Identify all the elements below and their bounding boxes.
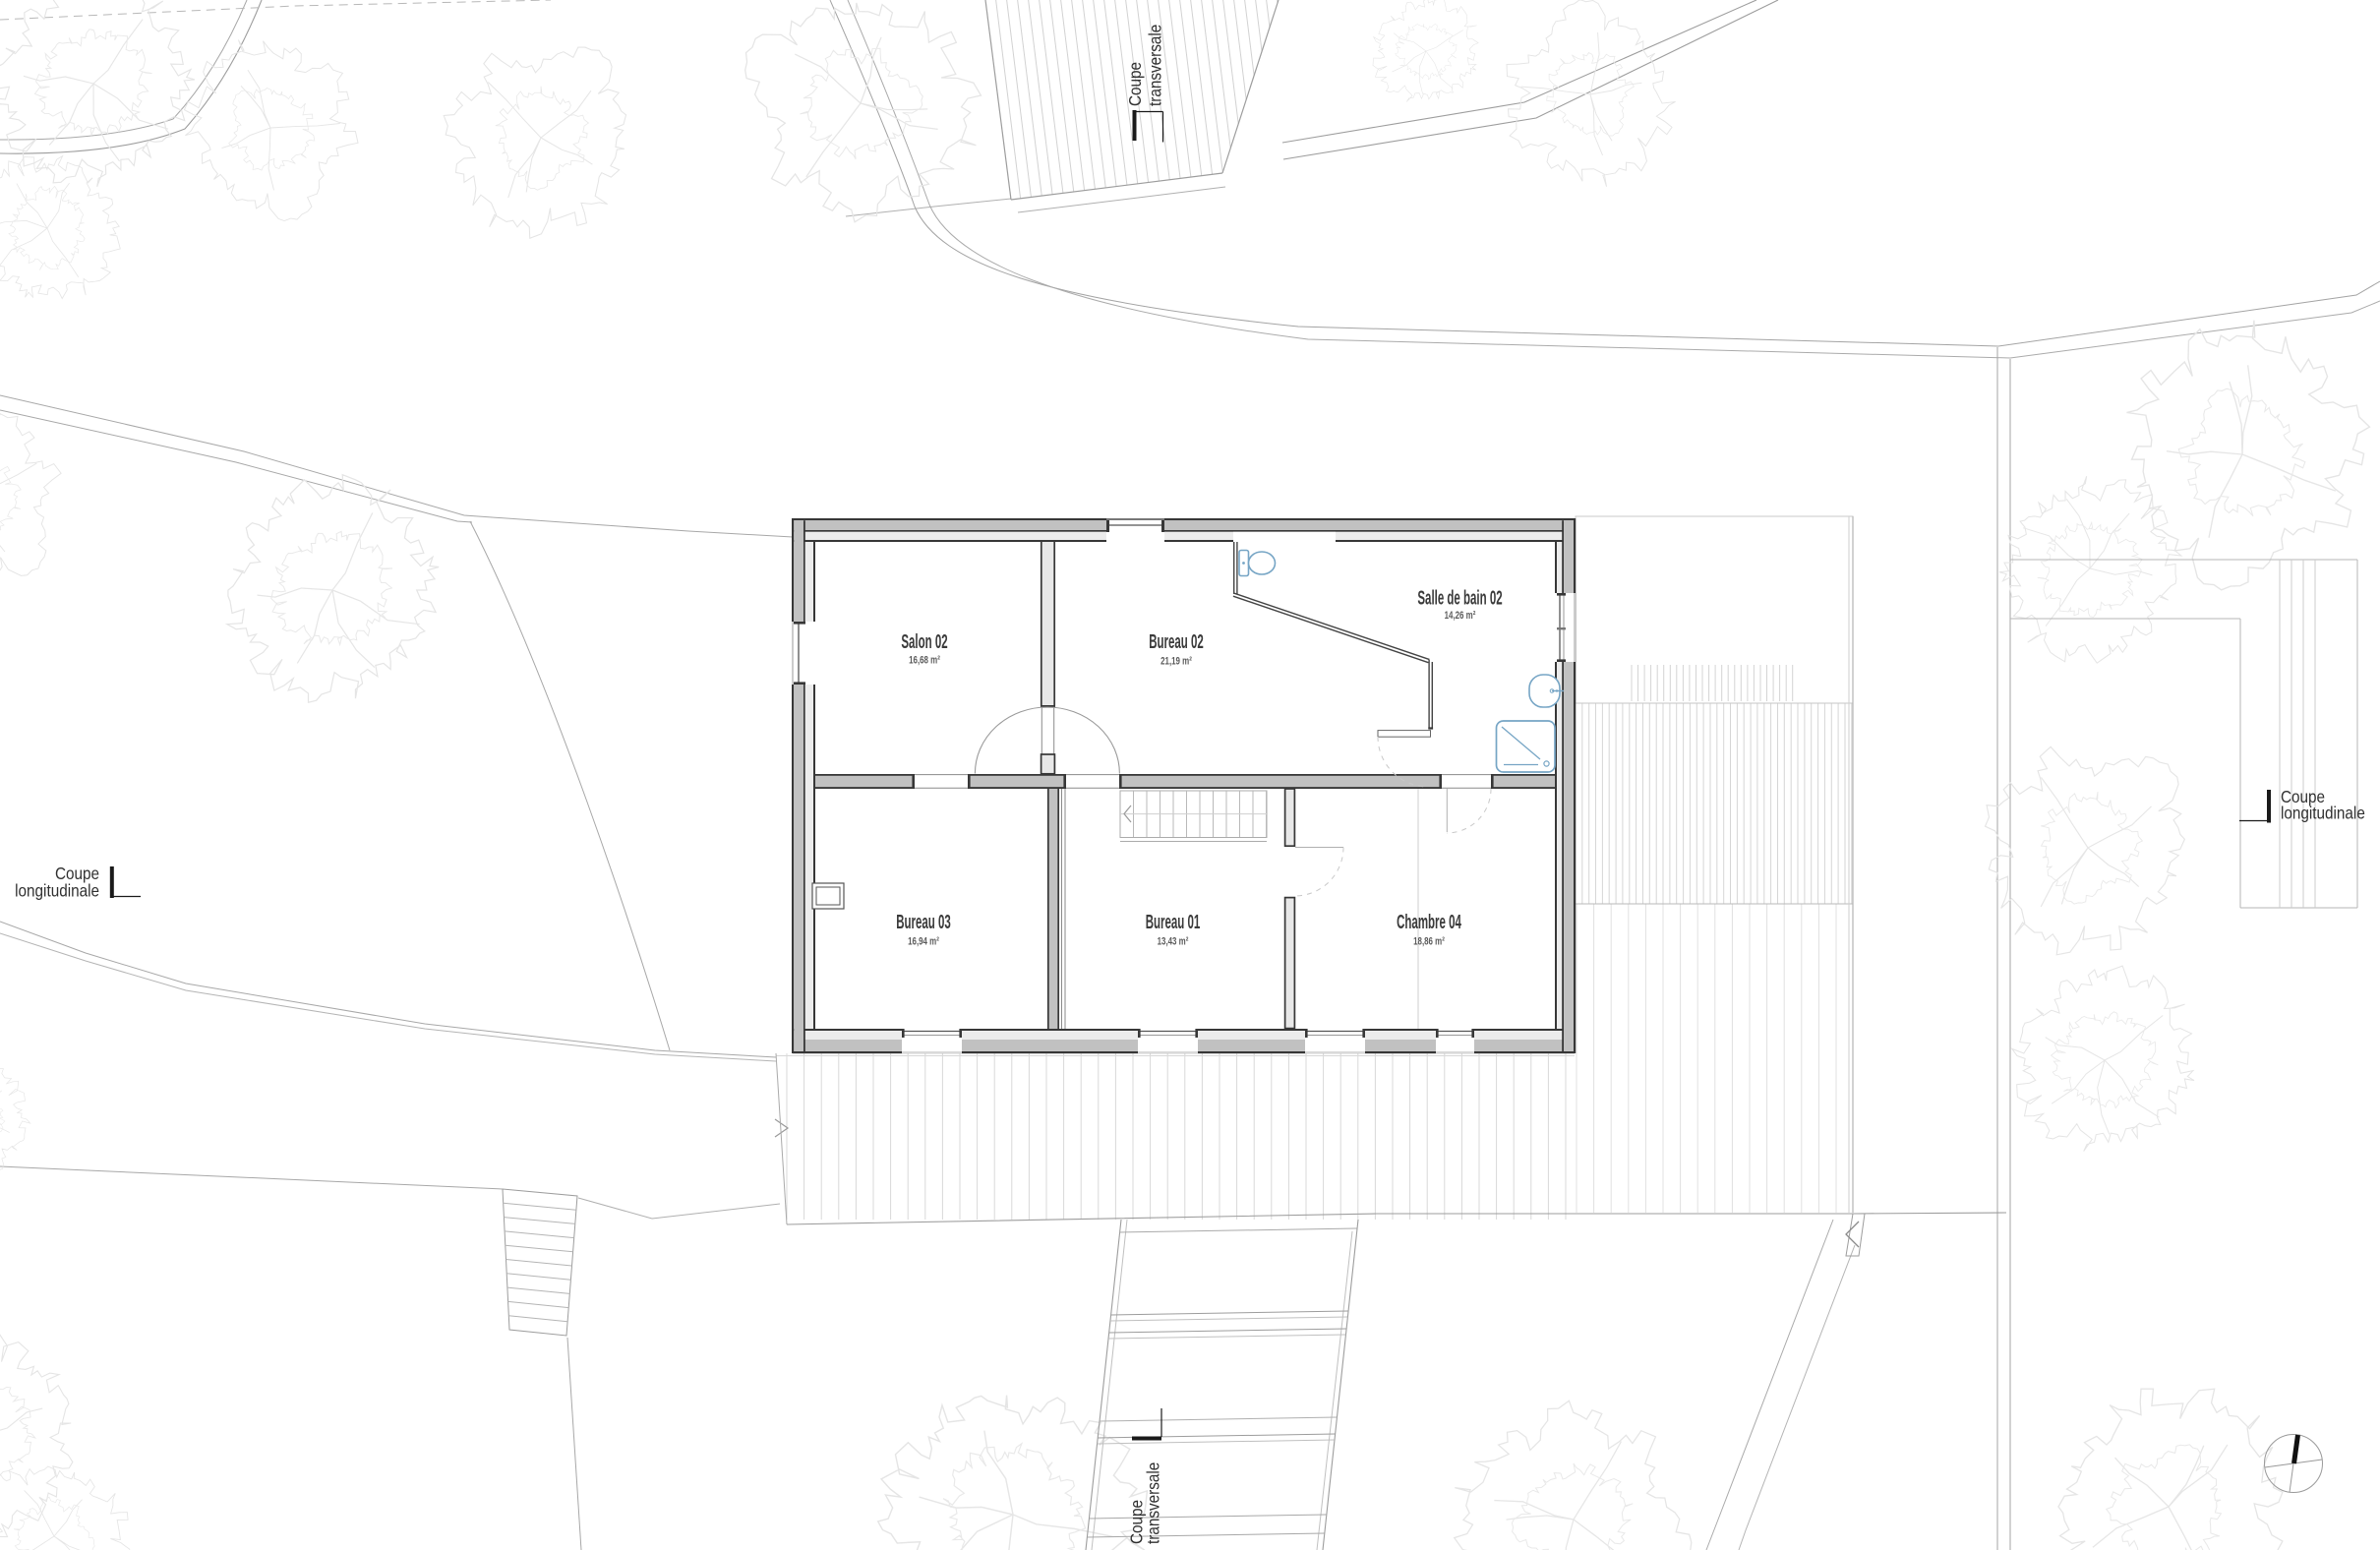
svg-text:longitudinale: longitudinale	[2281, 803, 2365, 822]
svg-text:14,26 m²: 14,26 m²	[1445, 610, 1476, 623]
svg-text:transversale: transversale	[1143, 1462, 1162, 1544]
svg-text:longitudinale: longitudinale	[15, 880, 99, 900]
svg-text:18,86 m²: 18,86 m²	[1413, 935, 1445, 948]
svg-text:Bureau 02: Bureau 02	[1149, 631, 1204, 653]
svg-text:Coupe: Coupe	[1125, 62, 1145, 106]
svg-text:Bureau 03: Bureau 03	[896, 912, 951, 933]
svg-text:21,19 m²: 21,19 m²	[1160, 655, 1192, 668]
svg-text:Salon 02: Salon 02	[901, 631, 947, 653]
svg-text:Bureau 01: Bureau 01	[1146, 912, 1201, 933]
svg-text:13,43 m²: 13,43 m²	[1158, 935, 1189, 948]
svg-text:Salle de bain 02: Salle de bain 02	[1417, 587, 1502, 609]
svg-text:Chambre 04: Chambre 04	[1397, 912, 1461, 933]
svg-text:16,94 m²: 16,94 m²	[908, 935, 939, 948]
svg-text:transversale: transversale	[1145, 25, 1164, 106]
svg-text:16,68 m²: 16,68 m²	[909, 654, 940, 667]
